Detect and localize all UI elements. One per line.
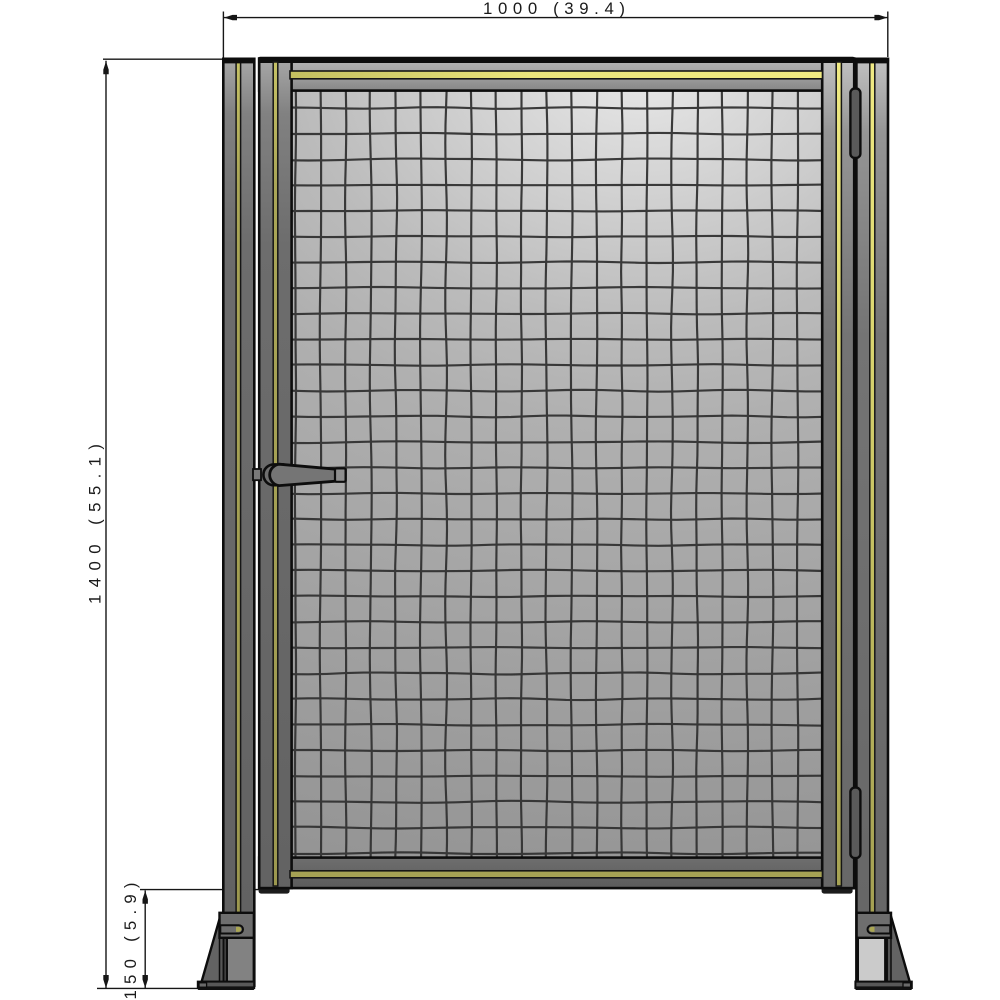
svg-text:1400 (55.1): 1400 (55.1) (86, 444, 105, 604)
svg-text:1000 (39.4): 1000 (39.4) (483, 0, 625, 18)
svg-text:150 (5.9): 150 (5.9) (121, 883, 140, 1000)
